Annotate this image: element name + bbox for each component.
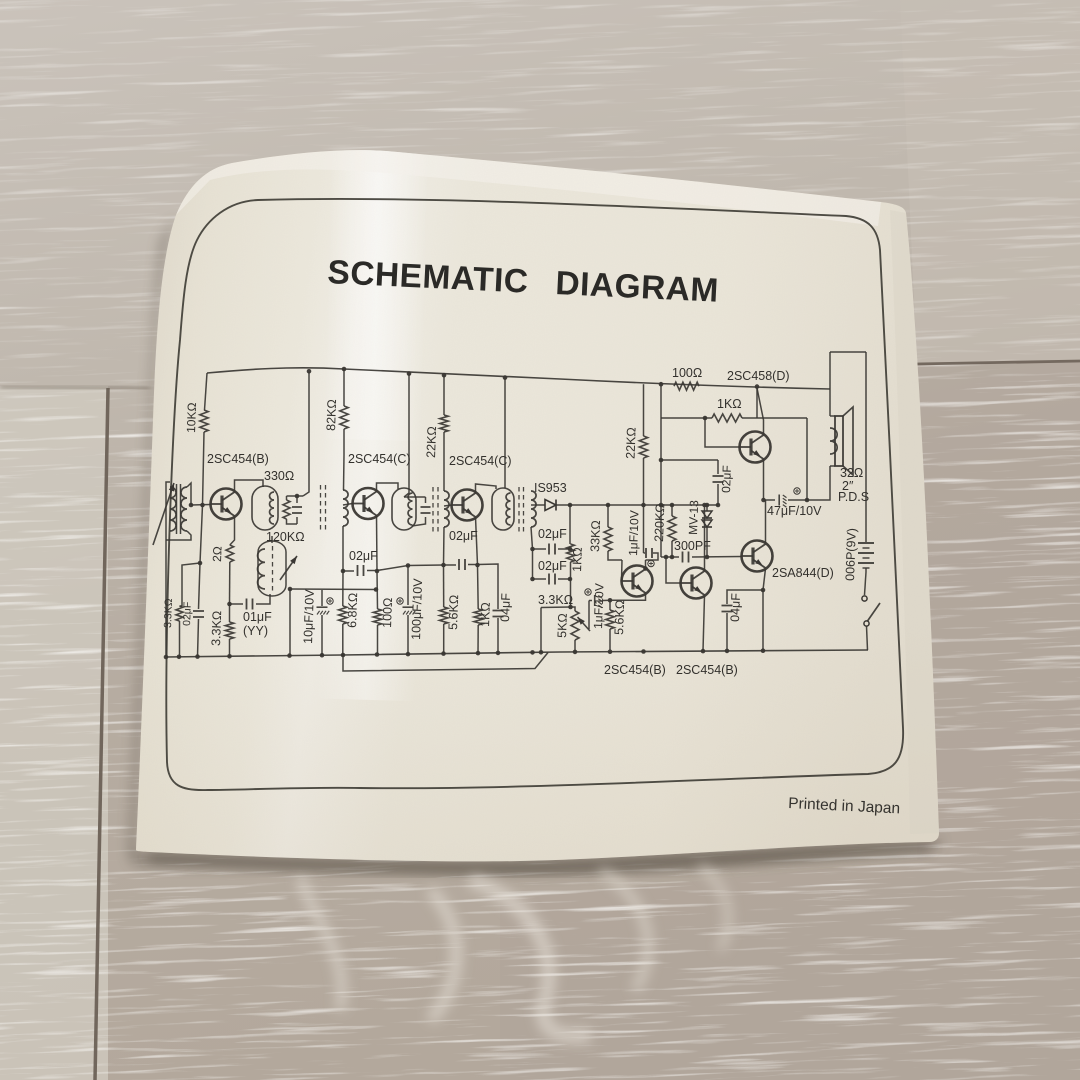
- svg-text:300PF: 300PF: [674, 539, 711, 553]
- svg-text:22KΩ: 22KΩ: [424, 426, 439, 458]
- svg-text:5KΩ: 5KΩ: [555, 613, 570, 638]
- svg-text:33KΩ: 33KΩ: [588, 520, 603, 552]
- svg-text:02μF: 02μF: [719, 465, 734, 493]
- svg-text:82KΩ: 82KΩ: [324, 399, 339, 431]
- svg-text:2SA844(D): 2SA844(D): [772, 566, 834, 580]
- svg-text:2SC454(B): 2SC454(B): [207, 452, 269, 466]
- svg-text:1KΩ: 1KΩ: [478, 602, 493, 627]
- svg-text:100Ω: 100Ω: [380, 597, 395, 628]
- svg-text:5.6KΩ: 5.6KΩ: [612, 600, 627, 636]
- svg-text:10KΩ: 10KΩ: [184, 402, 199, 433]
- svg-text:2SC458(D): 2SC458(D): [727, 369, 790, 383]
- svg-text:3.3KΩ: 3.3KΩ: [162, 598, 175, 628]
- svg-text:1KΩ: 1KΩ: [717, 397, 742, 411]
- svg-text:P.D.S: P.D.S: [838, 490, 869, 504]
- svg-text:5.6KΩ: 5.6KΩ: [446, 595, 461, 631]
- svg-text:330Ω: 330Ω: [264, 469, 294, 483]
- svg-text:1μF/10V: 1μF/10V: [626, 510, 642, 556]
- svg-text:47μF/10V: 47μF/10V: [767, 504, 822, 518]
- svg-text:1KΩ: 1KΩ: [570, 547, 585, 572]
- svg-text:22KΩ: 22KΩ: [624, 427, 639, 459]
- svg-text:02μF: 02μF: [181, 602, 194, 627]
- svg-text:02μF: 02μF: [449, 529, 478, 543]
- svg-text:2SC454(C): 2SC454(C): [449, 454, 512, 468]
- svg-text:120KΩ: 120KΩ: [266, 530, 305, 544]
- svg-text:02μF: 02μF: [538, 559, 567, 573]
- svg-text:01μF: 01μF: [243, 610, 272, 624]
- svg-text:1μF/10V: 1μF/10V: [591, 583, 607, 629]
- svg-text:10μF/10V: 10μF/10V: [301, 589, 317, 645]
- svg-text:6.8KΩ: 6.8KΩ: [345, 593, 360, 629]
- svg-text:IS953: IS953: [534, 481, 567, 495]
- svg-text:220KΩ: 220KΩ: [652, 503, 667, 542]
- svg-text:006P(9V): 006P(9V): [843, 528, 859, 581]
- svg-text:2SC454(B): 2SC454(B): [676, 663, 738, 677]
- svg-text:2Ω: 2Ω: [210, 546, 225, 562]
- svg-text:02μF: 02μF: [538, 527, 567, 541]
- svg-text:32Ω: 32Ω: [840, 466, 863, 480]
- svg-text:04μF: 04μF: [728, 593, 743, 623]
- svg-text:100μF/10V: 100μF/10V: [409, 578, 425, 641]
- svg-text:2SC454(C): 2SC454(C): [348, 452, 411, 466]
- svg-text:(YY): (YY): [243, 624, 268, 638]
- svg-text:3.3KΩ: 3.3KΩ: [538, 593, 573, 607]
- svg-text:02μF: 02μF: [349, 549, 378, 563]
- svg-text:3.3KΩ: 3.3KΩ: [209, 611, 224, 647]
- svg-text:2SC454(B): 2SC454(B): [604, 663, 666, 677]
- svg-text:100Ω: 100Ω: [672, 366, 702, 380]
- svg-text:04μF: 04μF: [498, 593, 513, 623]
